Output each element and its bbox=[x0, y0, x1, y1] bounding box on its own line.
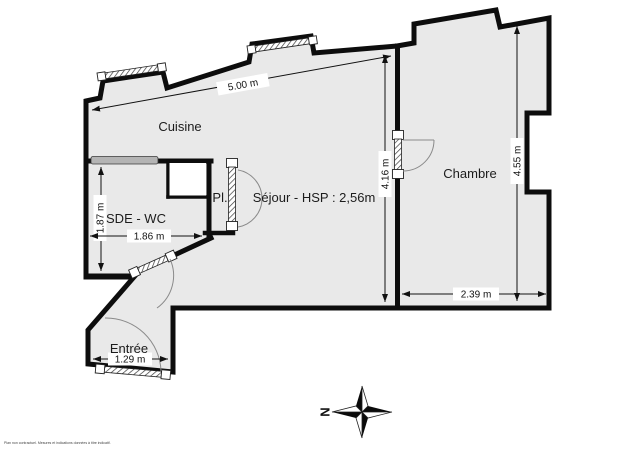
room-label-entree: Entrée bbox=[110, 341, 148, 356]
floor-plan-page: 5.00 m 4.16 m 4.55 m 2.39 m 1.87 m 1.86 … bbox=[0, 0, 640, 453]
svg-text:1.86 m: 1.86 m bbox=[134, 232, 165, 243]
svg-text:2.39 m: 2.39 m bbox=[461, 290, 492, 301]
compass-rose-icon: N bbox=[318, 386, 393, 438]
north-label: N bbox=[318, 407, 333, 416]
floor-plan-canvas: 5.00 m 4.16 m 4.55 m 2.39 m 1.87 m 1.86 … bbox=[0, 0, 640, 453]
glazed-bar bbox=[91, 157, 158, 165]
disclaimer-text: Plan non contractuel. Mesures et indicat… bbox=[4, 441, 111, 445]
svg-text:4.16 m: 4.16 m bbox=[381, 159, 392, 190]
svg-text:4.55 m: 4.55 m bbox=[513, 146, 524, 177]
svg-text:1.87 m: 1.87 m bbox=[96, 203, 107, 234]
room-label-sde-wc: SDE - WC bbox=[106, 211, 166, 226]
room-label-chambre: Chambre bbox=[443, 166, 496, 181]
room-label-sejour: Séjour - HSP : 2,56m bbox=[253, 190, 376, 205]
room-label-placard: Pl. bbox=[212, 190, 227, 205]
duct-box bbox=[170, 163, 207, 196]
svg-text:1.29 m: 1.29 m bbox=[115, 355, 146, 366]
room-label-cuisine: Cuisine bbox=[158, 119, 201, 134]
